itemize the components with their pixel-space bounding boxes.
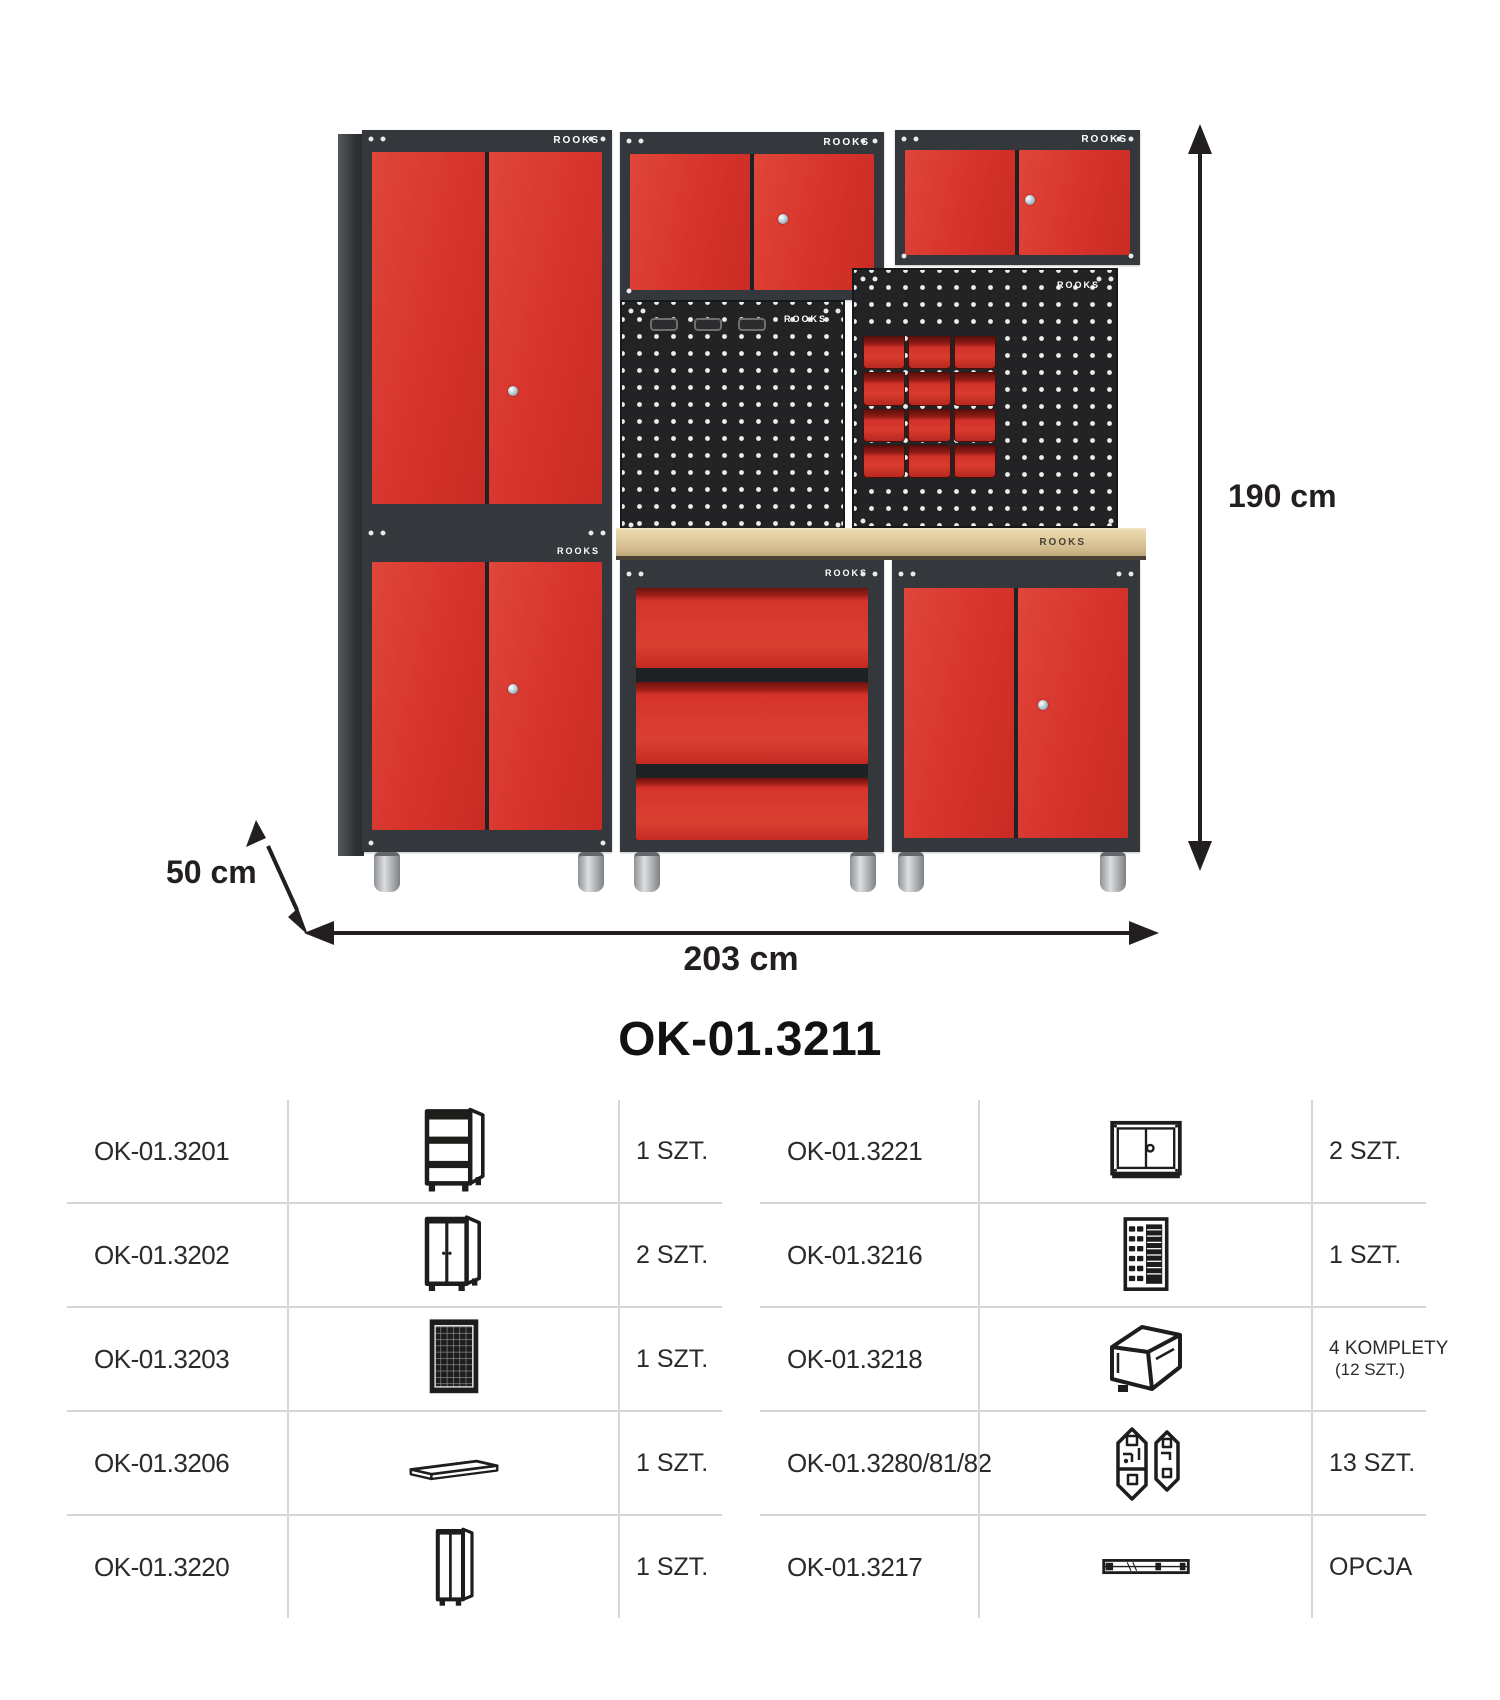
parts-table-right: OK-01.3221 2 SZT. [760, 1100, 1426, 1618]
tall-cabinet-icon [409, 1520, 499, 1614]
part-qty: 1 SZT. [636, 1449, 708, 1478]
base-rack-icon [409, 1104, 499, 1198]
part-code: OK-01.3203 [67, 1308, 287, 1410]
part-qty: 4 KOMPLETY [1329, 1338, 1448, 1360]
part-code: OK-01.3221 [760, 1100, 978, 1202]
base-cabinet-icon [409, 1208, 499, 1302]
table-row: OK-01.3216 [760, 1202, 1426, 1306]
storage-bin-icon [1096, 1309, 1196, 1409]
table-row: OK-01.3220 1 SZT. [67, 1514, 722, 1618]
product-figure: ROOKS ROOKS ROOKS ROOKS [0, 0, 1500, 1010]
table-row: OK-01.3218 4 KOMPLETY (12 SZT.) [760, 1306, 1426, 1410]
part-code: OK-01.3220 [67, 1516, 287, 1618]
table-row: OK-01.3203 1 SZT. [67, 1306, 722, 1410]
connectors-icon [1096, 1413, 1196, 1513]
height-dimension-label: 190 cm [1228, 478, 1337, 515]
part-qty: 1 SZT. [636, 1137, 708, 1166]
part-code: OK-01.3217 [760, 1516, 978, 1618]
part-code: OK-01.3280/81/82 [760, 1412, 978, 1514]
part-qty: OPCJA [1329, 1553, 1412, 1582]
part-qty: 1 SZT. [636, 1345, 708, 1374]
table-row: OK-01.3206 1 SZT. [67, 1410, 722, 1514]
table-row: OK-01.3217 OPCJA [760, 1514, 1426, 1618]
part-qty: 1 SZT. [1329, 1241, 1401, 1270]
table-row: OK-01.3280/81/82 [760, 1410, 1426, 1514]
parts-table-left: OK-01.3201 1 SZT. O [67, 1100, 722, 1618]
table-row: OK-01.3202 2 SZT. [67, 1202, 722, 1306]
part-code: OK-01.3206 [67, 1412, 287, 1514]
product-code-title: OK-01.3211 [0, 1012, 1500, 1067]
part-qty: 13 SZT. [1329, 1449, 1415, 1478]
width-dimension-label: 203 cm [616, 940, 866, 979]
product-sheet-page: { "brand": "ROOKS", "figure": { "dimensi… [0, 0, 1500, 1700]
wall-cabinet-icon [1096, 1104, 1196, 1198]
table-row: OK-01.3201 1 SZT. [67, 1100, 722, 1202]
table-row: OK-01.3221 2 SZT. [760, 1100, 1426, 1202]
part-code: OK-01.3216 [760, 1204, 978, 1306]
part-code: OK-01.3202 [67, 1204, 287, 1306]
parts-table: OK-01.3201 1 SZT. O [67, 1100, 1426, 1618]
part-code: OK-01.3218 [760, 1308, 978, 1410]
part-code: OK-01.3201 [67, 1100, 287, 1202]
pegboard-icon [409, 1312, 499, 1406]
depth-dimension-label: 50 cm [166, 854, 257, 891]
bin-panel-icon [1101, 1208, 1191, 1302]
part-qty-sub: (12 SZT.) [1329, 1360, 1405, 1380]
part-qty: 2 SZT. [636, 1241, 708, 1270]
part-qty: 1 SZT. [636, 1553, 708, 1582]
worktop-icon [399, 1416, 509, 1510]
drawer-slide-icon [1081, 1520, 1211, 1614]
part-qty: 2 SZT. [1329, 1137, 1401, 1166]
